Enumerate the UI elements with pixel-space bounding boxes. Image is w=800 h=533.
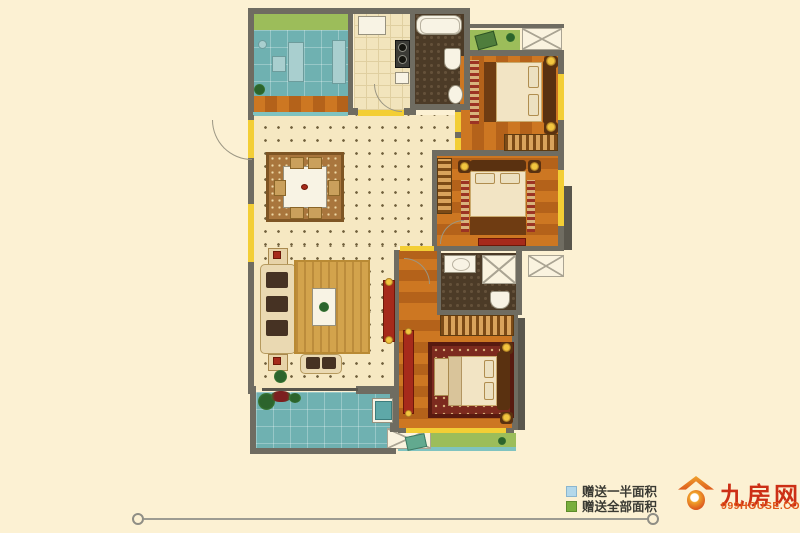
tv-console-cap-a (385, 278, 393, 286)
logo-swirl-icon (687, 490, 705, 510)
door-threshold-corridor (400, 246, 434, 251)
wall-bedroom3-bottom-r (506, 428, 514, 433)
entry-door-arc (212, 120, 252, 160)
kitchen-counter-item (395, 72, 409, 84)
window-living-west (248, 204, 254, 262)
balcony-flower (271, 391, 291, 402)
legend-swatch-full (566, 501, 577, 512)
se-balcony-plant (498, 437, 506, 445)
sofa-cushion-2 (266, 296, 288, 312)
dining-centerpiece (301, 184, 308, 190)
stove-burner-2 (398, 55, 407, 64)
dimension-endpoint-left (132, 513, 144, 525)
study-plant-icon (254, 84, 265, 95)
logo-subtitle: 999HOUSE.COM (721, 500, 800, 512)
door-threshold-bedroom1 (455, 112, 461, 132)
bed-3-pillow-1 (484, 360, 494, 378)
shower-tray-1 (448, 85, 463, 104)
ac-platform-north (522, 28, 562, 50)
wardrobe-1 (504, 134, 558, 151)
legend-label-full: 赠送全部面积 (582, 501, 657, 513)
side-table-1-top (273, 251, 281, 259)
lamp-2b (530, 162, 539, 171)
bed-1-pillow-2 (528, 94, 539, 116)
balcony-plant-2 (289, 393, 301, 403)
study-wood-strip (253, 96, 348, 112)
legend-swatch-half (566, 486, 577, 497)
bed-3-pillow-2 (484, 382, 494, 400)
wall-study-kitchen (348, 14, 353, 112)
wall-balcony-left (250, 392, 256, 454)
wall-shadow-bedroom3 (518, 318, 525, 430)
wall-kitchen-bath (410, 13, 415, 105)
bed-1-pillow-1 (528, 66, 539, 88)
bedroom-2-bench (478, 238, 526, 246)
console-cap-a (405, 328, 412, 335)
bed-2-headboard (470, 160, 526, 171)
bed-3-throw (448, 356, 462, 406)
wardrobe-3 (440, 315, 514, 336)
lamp-3b (502, 413, 511, 422)
wall-kitchen-bottom-l (348, 108, 358, 115)
bed-2-blanket (470, 217, 526, 235)
bed-2-pillow-1 (475, 173, 495, 184)
bedroom-3-bench (434, 358, 449, 396)
dining-chair-s2 (308, 207, 322, 219)
toilet-2 (490, 291, 510, 309)
bed-1-foot-runner (484, 62, 496, 122)
wall-bath1-bottom (410, 104, 470, 110)
vanity-2-sink (452, 258, 470, 271)
study-chair (272, 56, 286, 72)
lamp-1a (546, 56, 556, 66)
study-desk (288, 42, 304, 82)
window-bedroom1 (558, 74, 564, 120)
coffee-table-decor (319, 302, 329, 312)
legend-label-half: 赠送一半面积 (582, 486, 657, 498)
wall-top (248, 8, 470, 14)
bed-3-headboard (497, 352, 510, 410)
lamp-3a (502, 343, 511, 352)
wall-kitchen-bottom-r (404, 108, 416, 115)
bedroom-1-rug (470, 60, 479, 124)
sofa-cushion-1 (266, 272, 288, 288)
dining-chair-e (328, 180, 340, 196)
lamp-1b (546, 122, 556, 132)
bed-2-pillow-2 (500, 173, 520, 184)
wall-bath2-right (516, 250, 522, 314)
dimension-line (144, 518, 647, 520)
living-plant (274, 370, 287, 383)
dining-chair-n1 (290, 157, 304, 169)
stove-burner-1 (398, 43, 407, 52)
dining-chair-s1 (290, 207, 304, 219)
bed-2-rug-right (527, 180, 535, 232)
wardrobe-2 (437, 158, 452, 214)
wall-bay-top (466, 24, 564, 28)
kitchen-sink (358, 16, 386, 35)
bed-1-headboard (543, 60, 556, 124)
bathtub-inner (420, 18, 460, 34)
study-bay-garden (253, 12, 348, 30)
window-study-living (253, 112, 348, 116)
window-bedroom3-south (406, 428, 506, 433)
dining-chair-n2 (308, 157, 322, 169)
laundry-basin-inner (375, 401, 392, 420)
dimension-endpoint-right (647, 513, 659, 525)
tv-console (383, 280, 395, 342)
bedroom-3-console (403, 330, 414, 414)
dining-chair-w (274, 180, 286, 196)
bay-plant-1 (506, 33, 515, 42)
lamp-2a (460, 162, 469, 171)
shower-2 (482, 255, 516, 284)
study-stool (258, 40, 267, 49)
wall-bath2-left (437, 250, 441, 314)
toilet-1 (444, 48, 461, 70)
tv-console-cap-b (385, 336, 393, 344)
study-cabinet (332, 40, 346, 84)
legend: 赠送一半面积 赠送全部面积 (566, 485, 676, 517)
side-table-2-top (273, 357, 281, 365)
sofa-cushion-3 (266, 320, 288, 336)
floor-plan: 赠送一半面积 赠送全部面积 九房网 999HOUSE.COM (0, 0, 800, 533)
console-cap-b (405, 410, 412, 417)
wall-bedroom2-bottom (432, 246, 564, 251)
armchair-cushion-1 (306, 357, 320, 369)
site-logo: 九房网 999HOUSE.COM (678, 474, 796, 514)
wall-shadow-bedroom2 (564, 186, 572, 250)
wall-bedroom3-bottom-l (398, 428, 406, 433)
wall-balcony-bottom (250, 448, 396, 454)
armchair-cushion-2 (322, 357, 336, 369)
ac-platform-east (528, 255, 564, 277)
wall-study-left (248, 14, 254, 115)
